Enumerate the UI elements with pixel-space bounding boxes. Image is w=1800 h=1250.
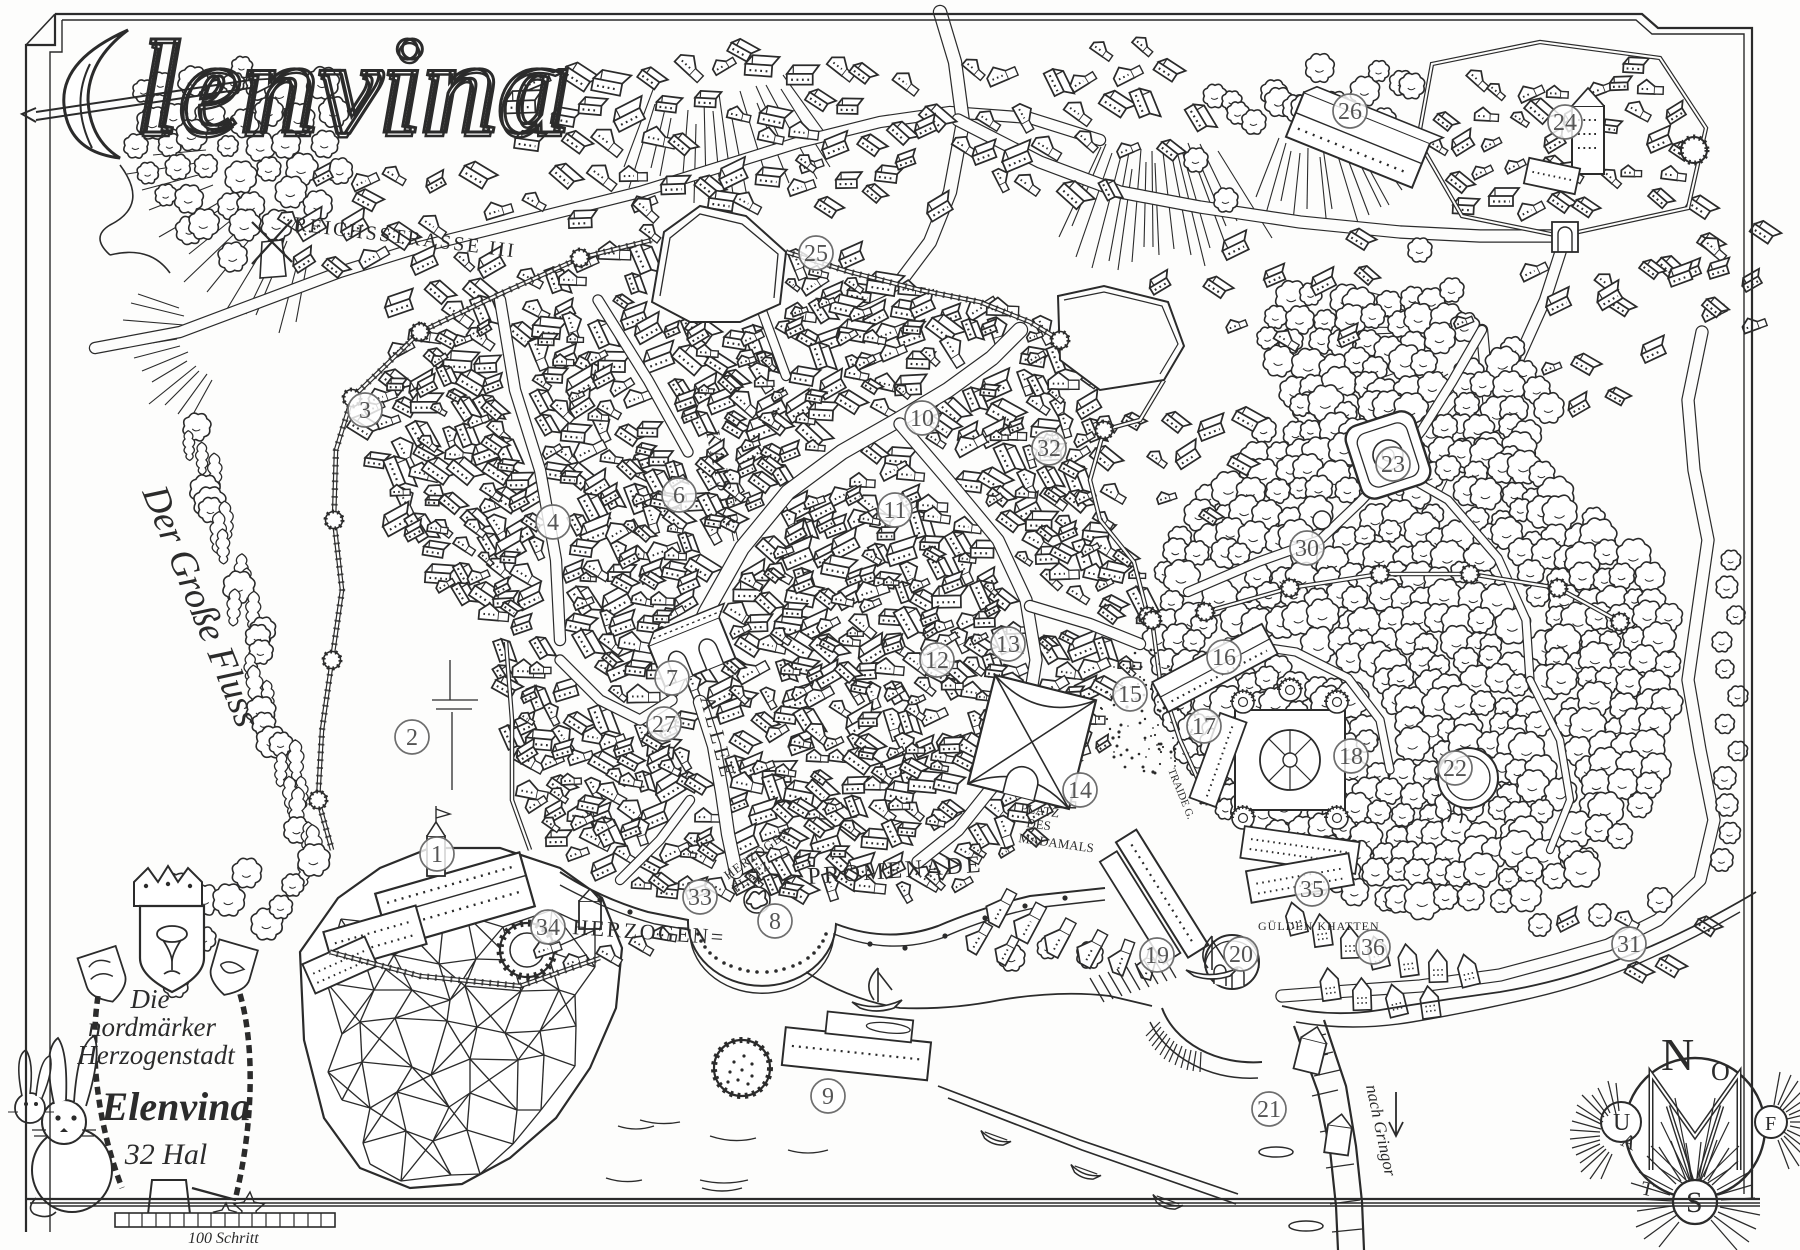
svg-text:N: N: [1661, 1029, 1694, 1080]
svg-text:F: F: [1765, 1113, 1776, 1135]
svg-text:Herzogenstadt: Herzogenstadt: [76, 1040, 236, 1070]
svg-text:22: 22: [1443, 756, 1467, 782]
svg-text:13: 13: [996, 632, 1020, 658]
svg-text:27: 27: [652, 712, 676, 738]
svg-text:lenvina: lenvina: [140, 17, 570, 165]
svg-text:4: 4: [547, 510, 559, 536]
svg-text:12: 12: [925, 648, 949, 674]
svg-text:Elenvina: Elenvina: [101, 1084, 251, 1129]
svg-text:2: 2: [406, 725, 418, 751]
svg-text:30: 30: [1295, 536, 1319, 562]
svg-text:3: 3: [359, 398, 371, 424]
svg-text:6: 6: [673, 483, 685, 509]
svg-text:18: 18: [1339, 744, 1363, 770]
svg-text:Die: Die: [130, 984, 170, 1014]
svg-text:21: 21: [1257, 1097, 1281, 1123]
svg-text:nordmärker: nordmärker: [88, 1012, 216, 1042]
svg-text:1: 1: [431, 842, 443, 868]
svg-text:23: 23: [1381, 452, 1405, 478]
svg-text:24: 24: [1553, 110, 1577, 136]
svg-text:15: 15: [1118, 682, 1142, 708]
svg-text:7: 7: [666, 666, 678, 692]
svg-text:O: O: [1711, 1057, 1730, 1086]
svg-text:17: 17: [1192, 714, 1216, 740]
svg-text:100 Schritt: 100 Schritt: [188, 1230, 259, 1247]
svg-text:35: 35: [1300, 877, 1324, 903]
svg-text:19: 19: [1145, 943, 1169, 969]
svg-text:32: 32: [1037, 436, 1061, 462]
svg-text:11: 11: [883, 498, 906, 524]
svg-text:26: 26: [1338, 99, 1362, 125]
svg-text:34: 34: [536, 915, 560, 941]
svg-text:31: 31: [1617, 932, 1641, 958]
svg-text:10: 10: [910, 406, 934, 432]
svg-text:25: 25: [804, 241, 828, 267]
svg-text:32 Hal: 32 Hal: [124, 1138, 208, 1171]
svg-text:20: 20: [1229, 942, 1253, 968]
svg-text:16: 16: [1212, 645, 1236, 671]
svg-text:8: 8: [769, 909, 781, 935]
svg-text:36: 36: [1361, 935, 1385, 961]
svg-text:9: 9: [822, 1084, 834, 1110]
svg-text:GÜLDEN KHATTEN: GÜLDEN KHATTEN: [1258, 919, 1380, 933]
svg-text:33: 33: [688, 885, 712, 911]
svg-text:14: 14: [1068, 778, 1092, 804]
